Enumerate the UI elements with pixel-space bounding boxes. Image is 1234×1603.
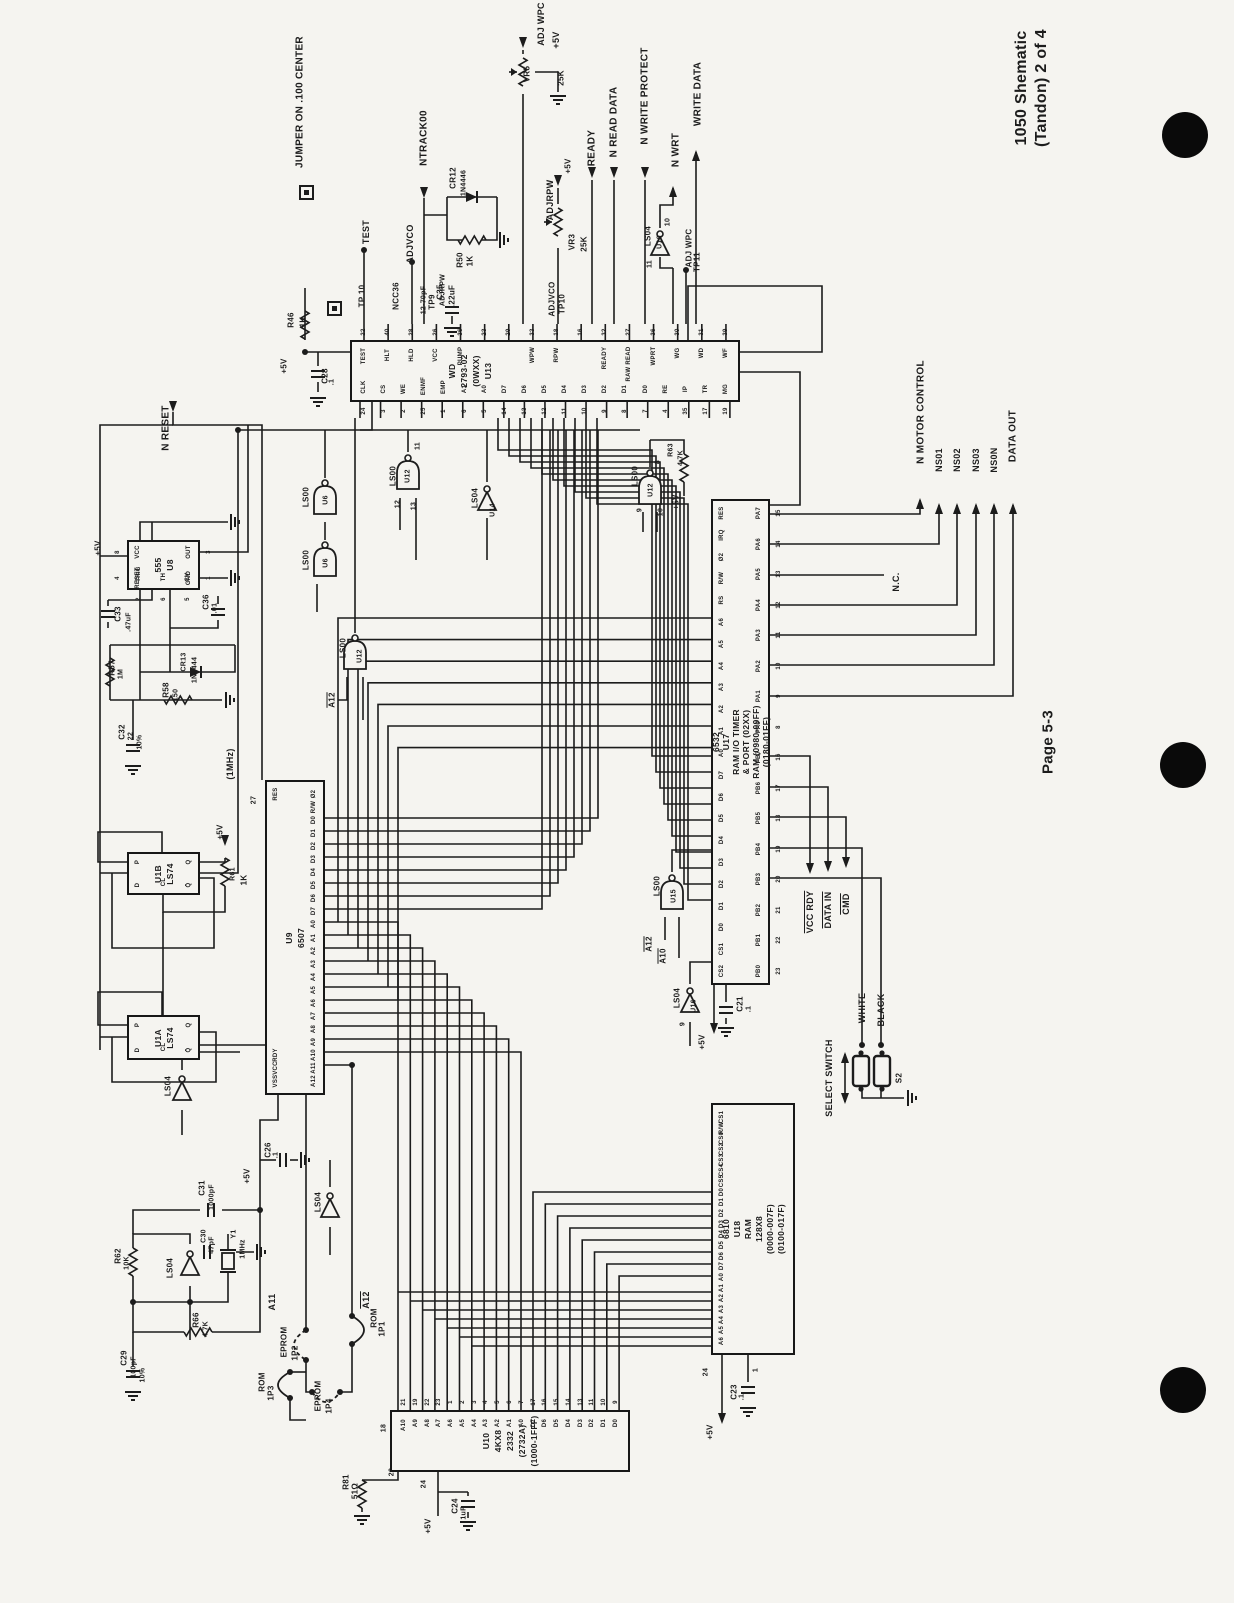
crystal bbox=[222, 1253, 234, 1269]
wire bbox=[133, 1302, 184, 1332]
wire bbox=[140, 645, 235, 672]
wire bbox=[770, 505, 957, 605]
junction-dot bbox=[130, 1299, 136, 1305]
junction-dot bbox=[361, 247, 367, 253]
wire bbox=[558, 1216, 711, 1410]
wire bbox=[770, 500, 920, 514]
wire bbox=[690, 962, 711, 984]
switch-s2 bbox=[858, 1086, 863, 1091]
resistor bbox=[458, 236, 486, 244]
wire bbox=[770, 505, 939, 544]
ic-u1b-ls74 bbox=[127, 852, 200, 895]
signal-arrow bbox=[1009, 503, 1017, 514]
nand-gate bbox=[322, 480, 328, 486]
jumper-arc bbox=[352, 1316, 364, 1344]
jumper-icon bbox=[332, 306, 337, 311]
wire bbox=[325, 430, 598, 818]
wire bbox=[325, 948, 423, 1410]
nand-gate bbox=[647, 470, 653, 476]
wire bbox=[770, 505, 976, 635]
wire bbox=[290, 1398, 306, 1420]
schematic-wiring bbox=[0, 0, 1234, 1603]
signal-arrow bbox=[841, 1052, 849, 1063]
junction-dot bbox=[859, 1042, 865, 1048]
wire bbox=[306, 1360, 312, 1392]
junction-dot bbox=[349, 1341, 355, 1347]
wire bbox=[170, 620, 218, 628]
signal-arrow bbox=[641, 167, 649, 178]
signal-arrow bbox=[554, 175, 562, 186]
signal-arrow bbox=[610, 167, 618, 178]
jumper-arc bbox=[278, 1372, 290, 1398]
wire bbox=[660, 257, 673, 268]
wire bbox=[770, 787, 828, 866]
inverter-gate bbox=[179, 1076, 185, 1082]
diode bbox=[466, 192, 477, 202]
wire bbox=[325, 430, 582, 844]
wire bbox=[338, 677, 347, 700]
wire bbox=[190, 1280, 228, 1302]
potentiometer bbox=[511, 68, 517, 76]
junction-dot bbox=[349, 1313, 355, 1319]
wire bbox=[378, 704, 711, 974]
junction-dot bbox=[337, 1389, 343, 1395]
inverter-gate bbox=[484, 486, 490, 492]
hole-punch-middle bbox=[1160, 742, 1206, 788]
junction-dot bbox=[349, 1062, 355, 1068]
signal-arrow bbox=[519, 37, 527, 48]
signal-arrow bbox=[692, 150, 700, 161]
junction-dot bbox=[287, 1395, 293, 1401]
nand-gate bbox=[405, 455, 411, 461]
signal-arrow bbox=[841, 1093, 849, 1104]
junction-dot bbox=[303, 1357, 309, 1363]
wire bbox=[535, 72, 558, 92]
signal-arrow bbox=[972, 503, 980, 514]
wire bbox=[542, 418, 711, 820]
junction-dot bbox=[303, 1327, 309, 1333]
wire bbox=[770, 505, 994, 665]
signal-arrow bbox=[916, 498, 924, 509]
schematic-page: 1050 Shematic (Tandon) 2 of 4 Page 5-3 J… bbox=[0, 0, 1234, 1603]
junction-dot bbox=[287, 1369, 293, 1375]
wire bbox=[770, 817, 846, 862]
signal-arrow bbox=[669, 186, 677, 197]
junction-dot bbox=[235, 427, 241, 433]
switch-s2 bbox=[858, 1050, 863, 1055]
wire bbox=[582, 1240, 711, 1410]
jumper-icon bbox=[304, 190, 309, 195]
wire bbox=[140, 522, 228, 540]
wire bbox=[340, 1344, 352, 1392]
junction-dot bbox=[187, 1299, 193, 1305]
signal-arrow bbox=[824, 861, 832, 872]
wire bbox=[200, 425, 248, 552]
inverter-gate bbox=[687, 988, 693, 994]
wire bbox=[325, 961, 435, 1410]
junction-dot bbox=[302, 349, 308, 355]
wire bbox=[133, 1234, 190, 1248]
junction-dot bbox=[878, 1042, 884, 1048]
switch-s2 bbox=[879, 1086, 884, 1091]
wire bbox=[740, 372, 800, 505]
signal-arrow bbox=[710, 1023, 718, 1034]
wire bbox=[447, 197, 463, 240]
signal-arrow bbox=[718, 1413, 726, 1424]
inverter-gate bbox=[173, 1082, 191, 1100]
inverter-gate bbox=[181, 1257, 199, 1275]
wire bbox=[133, 1276, 190, 1302]
inverter-gate bbox=[187, 1251, 193, 1257]
signal-arrow bbox=[842, 857, 850, 868]
junction-dot bbox=[683, 267, 689, 273]
switch-s2 bbox=[853, 1056, 869, 1086]
signal-arrow bbox=[588, 167, 596, 178]
hole-punch-top bbox=[1162, 112, 1208, 158]
signal-arrow bbox=[990, 503, 998, 514]
junction-dot bbox=[257, 1207, 263, 1213]
signal-arrow bbox=[420, 187, 428, 198]
inverter-gate bbox=[321, 1199, 339, 1217]
wire bbox=[200, 858, 225, 862]
nand-gate bbox=[352, 635, 358, 641]
switch-s2 bbox=[879, 1050, 884, 1055]
wire bbox=[133, 1210, 200, 1234]
signal-arrow bbox=[935, 503, 943, 514]
wire bbox=[325, 1065, 352, 1316]
wire bbox=[325, 987, 460, 1410]
wire bbox=[481, 197, 497, 240]
switch-s2 bbox=[874, 1056, 890, 1086]
hole-punch-bottom bbox=[1160, 1367, 1206, 1413]
potentiometer bbox=[554, 208, 562, 236]
wire bbox=[619, 1276, 711, 1410]
inverter-gate bbox=[327, 1193, 333, 1199]
nand-gate bbox=[322, 542, 328, 548]
signal-arrow bbox=[953, 503, 961, 514]
nand-gate bbox=[669, 875, 675, 881]
signal-arrow bbox=[806, 863, 814, 874]
wire bbox=[108, 590, 152, 600]
wire bbox=[222, 1160, 260, 1210]
